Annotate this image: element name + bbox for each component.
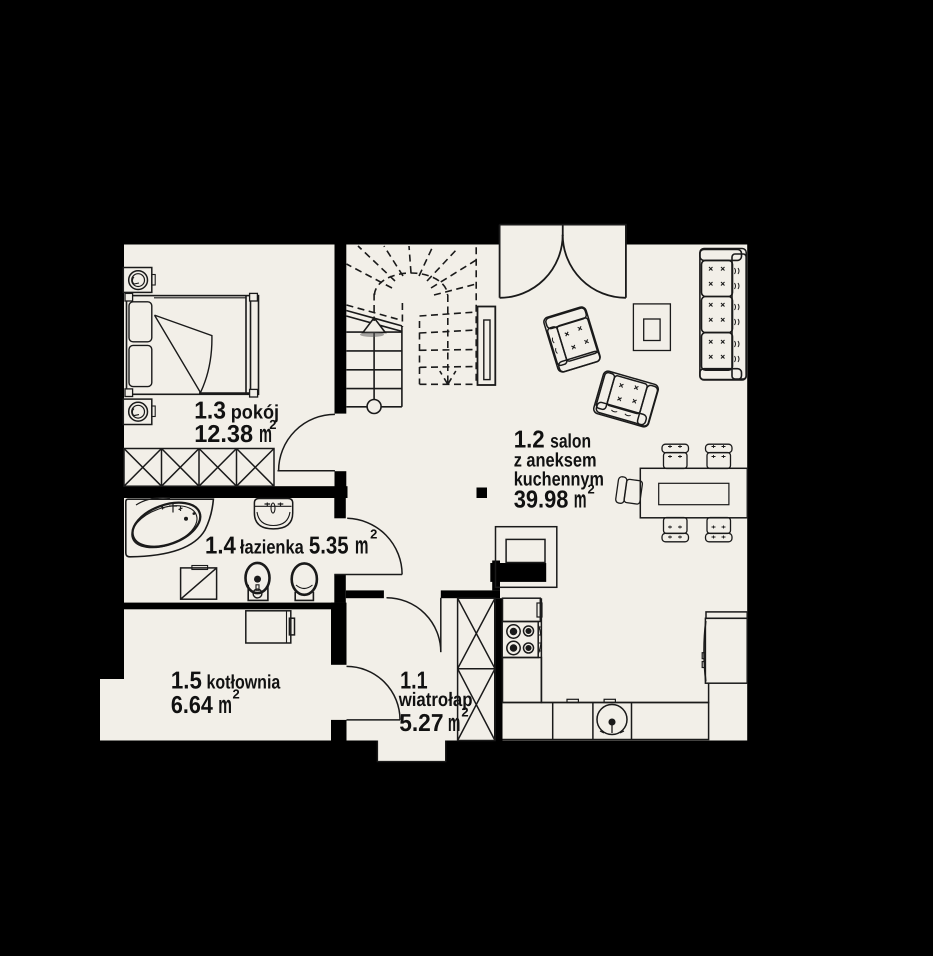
svg-text:łazienka: łazienka — [240, 536, 304, 558]
svg-text:1.4: 1.4 — [205, 532, 236, 559]
svg-text:2: 2 — [269, 417, 276, 432]
svg-text:6.64: 6.64 — [171, 692, 213, 719]
svg-text:2: 2 — [233, 686, 240, 701]
svg-text:12.38: 12.38 — [194, 421, 253, 448]
svg-text:2: 2 — [370, 527, 377, 542]
svg-text:kotłownia: kotłownia — [207, 671, 281, 693]
svg-text:5.27: 5.27 — [399, 710, 443, 737]
svg-text:m: m — [218, 692, 232, 719]
svg-text:m: m — [574, 486, 587, 513]
svg-text:1.5: 1.5 — [171, 667, 202, 694]
svg-text:m: m — [355, 532, 369, 559]
svg-text:2: 2 — [461, 705, 468, 720]
svg-text:2: 2 — [588, 481, 595, 496]
svg-text:5.35: 5.35 — [309, 532, 349, 559]
svg-text:39.98: 39.98 — [514, 486, 569, 513]
svg-text:m: m — [448, 710, 461, 737]
